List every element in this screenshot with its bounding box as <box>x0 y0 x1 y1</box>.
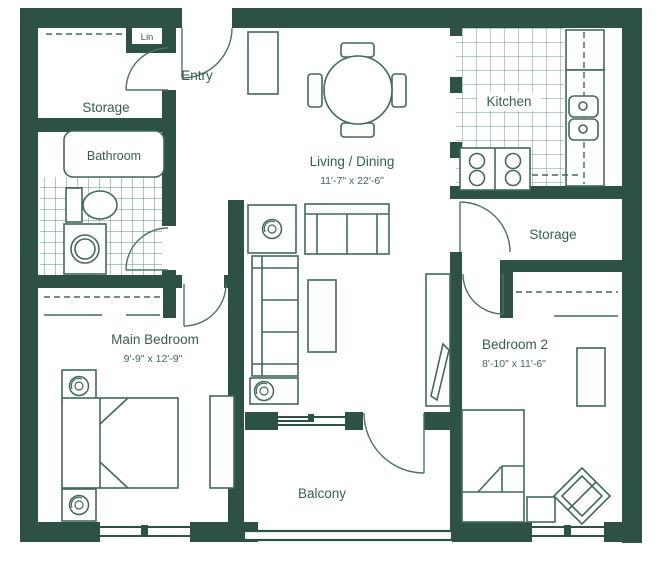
room-dimensions-living-dining: 11'-7" x 22'-6" <box>320 175 384 187</box>
window-balcony-sliding <box>278 412 345 430</box>
window-main-bedroom <box>100 522 190 542</box>
room-label-kitchen: Kitchen <box>486 94 531 109</box>
bathroom-sink <box>64 224 106 274</box>
room-dimensions-main-bedroom: 9'-9" x 12'-9" <box>124 353 183 365</box>
room-label-main-bedroom: Main Bedroom <box>111 332 199 347</box>
stove <box>460 148 530 190</box>
balcony-railing <box>244 531 452 540</box>
room-label-balcony: Balcony <box>298 486 346 501</box>
utility-unit <box>248 205 296 253</box>
room-label-living-dining: Living / Dining <box>310 154 395 169</box>
entry-cabinet <box>248 32 278 94</box>
coffee-table <box>308 280 336 352</box>
nightstand <box>62 489 96 521</box>
room-label-storage-right: Storage <box>529 227 576 242</box>
room-label-bedroom-2: Bedroom 2 <box>482 337 548 352</box>
double-bed <box>62 398 178 488</box>
room-dimensions-bedroom-2: 8'-10" x 11'-6" <box>482 358 546 370</box>
refrigerator <box>566 30 604 70</box>
loveseat <box>305 204 389 254</box>
bookshelf <box>426 274 450 406</box>
lamp-icon <box>70 377 89 396</box>
room-label-entry: Entry <box>181 68 213 83</box>
desk <box>577 348 605 406</box>
lamp-icon <box>255 382 274 401</box>
room-label-bathroom: Bathroom <box>87 149 141 163</box>
lamp-icon <box>70 496 89 515</box>
end-table <box>250 378 298 404</box>
room-label-storage-left: Storage <box>82 100 129 115</box>
single-bed <box>462 410 524 522</box>
fan-icon <box>263 220 282 239</box>
toilet <box>66 188 117 222</box>
dresser <box>210 396 234 488</box>
floor-plan-page: Lin Entry Storage Bathroom Kitchen Livin… <box>0 0 672 586</box>
sofa <box>252 256 298 376</box>
side-table <box>527 497 555 522</box>
room-label-lin: Lin <box>141 32 154 43</box>
floor-plan: Lin Entry Storage Bathroom Kitchen Livin… <box>0 0 672 586</box>
window-bedroom-2 <box>532 522 604 542</box>
